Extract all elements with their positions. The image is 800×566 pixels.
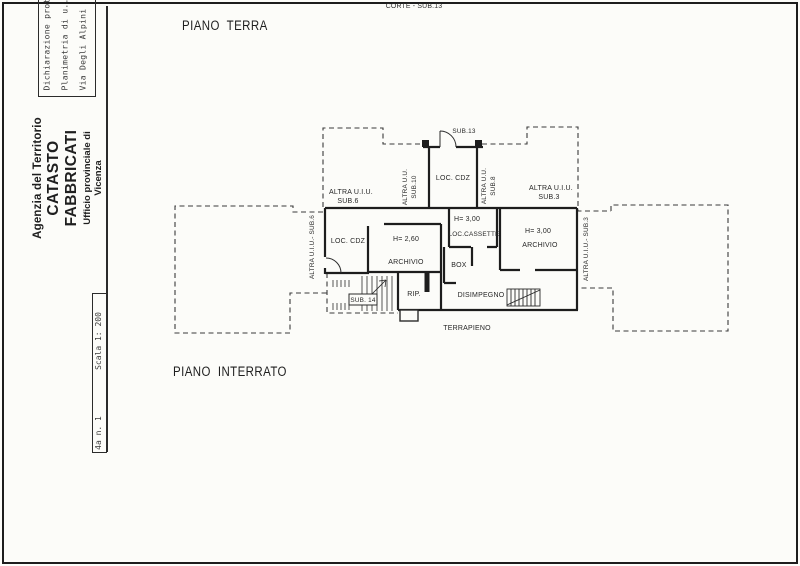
label-altra-sub10-2: SUB.10 xyxy=(411,175,418,198)
label-loc-cassette: LOC.CASSETTE xyxy=(448,231,499,238)
label-h300-archivio: H= 3,00 xyxy=(525,228,551,235)
label-sub14: SUB. 14 xyxy=(350,297,375,304)
left-room-door-swing xyxy=(326,258,341,273)
label-box: BOX xyxy=(451,262,467,269)
label-terrapieno: TERRAPIENO xyxy=(443,325,491,332)
label-rip: RIP. xyxy=(407,291,421,298)
label-h260: H= 2,60 xyxy=(393,236,419,243)
plan-labels: SUB.13 LOC. CDZ ALTRA U.I.U. SUB.6 ALTRA… xyxy=(329,128,573,332)
dashed-boundaries xyxy=(175,127,728,333)
door-pillar-right xyxy=(475,140,482,147)
label-altra-sub10-1: ALTRA U.U. xyxy=(402,169,409,205)
floor-plan-drawing: SUB.13 LOC. CDZ ALTRA U.I.U. SUB.6 ALTRA… xyxy=(0,0,800,566)
stairs-left-lower-ticks xyxy=(333,303,349,310)
left-unit-boundary xyxy=(175,206,327,333)
door-pillar-left xyxy=(422,140,429,147)
label-disimpegno: DISIMPEGNO xyxy=(458,292,505,299)
label-archivio-center: ARCHIVIO xyxy=(388,259,424,266)
cassette-room-walls xyxy=(449,208,497,247)
label-altra-sub3-1: ALTRA U.I.U. xyxy=(529,185,573,192)
label-altra-sub6-2: SUB.6 xyxy=(337,198,358,205)
label-altra-sub3-side: ALTRA U.I.U.- SUB.3 xyxy=(583,217,590,281)
label-altra-sub3-2: SUB.3 xyxy=(538,194,559,201)
label-altra-sub8-1: ALTRA U.U. xyxy=(481,168,488,204)
label-loc-cdz-top: LOC. CDZ xyxy=(436,175,471,182)
stairs-right xyxy=(507,289,540,306)
label-sub13: SUB.13 xyxy=(452,128,475,135)
label-h300-cassette: H= 3,00 xyxy=(454,216,480,223)
label-altra-sub6-side: ALTRA U.I.U.- SUB.6 xyxy=(309,215,316,279)
wall-protrusion xyxy=(400,310,418,321)
right-room-walls xyxy=(500,208,577,270)
label-altra-sub6-1: ALTRA U.I.U. xyxy=(329,189,373,196)
label-altra-sub8-2: SUB.8 xyxy=(490,176,497,196)
label-archivio-right: ARCHIVIO xyxy=(522,242,558,249)
stairs-left-upper-ticks xyxy=(333,280,349,287)
right-unit-boundary xyxy=(578,205,728,331)
label-loc-cdz-left: LOC. CDZ xyxy=(331,238,366,245)
scanned-cadastral-sheet: Dichiarazione prot Planimetria di u.. Vi… xyxy=(0,0,800,566)
